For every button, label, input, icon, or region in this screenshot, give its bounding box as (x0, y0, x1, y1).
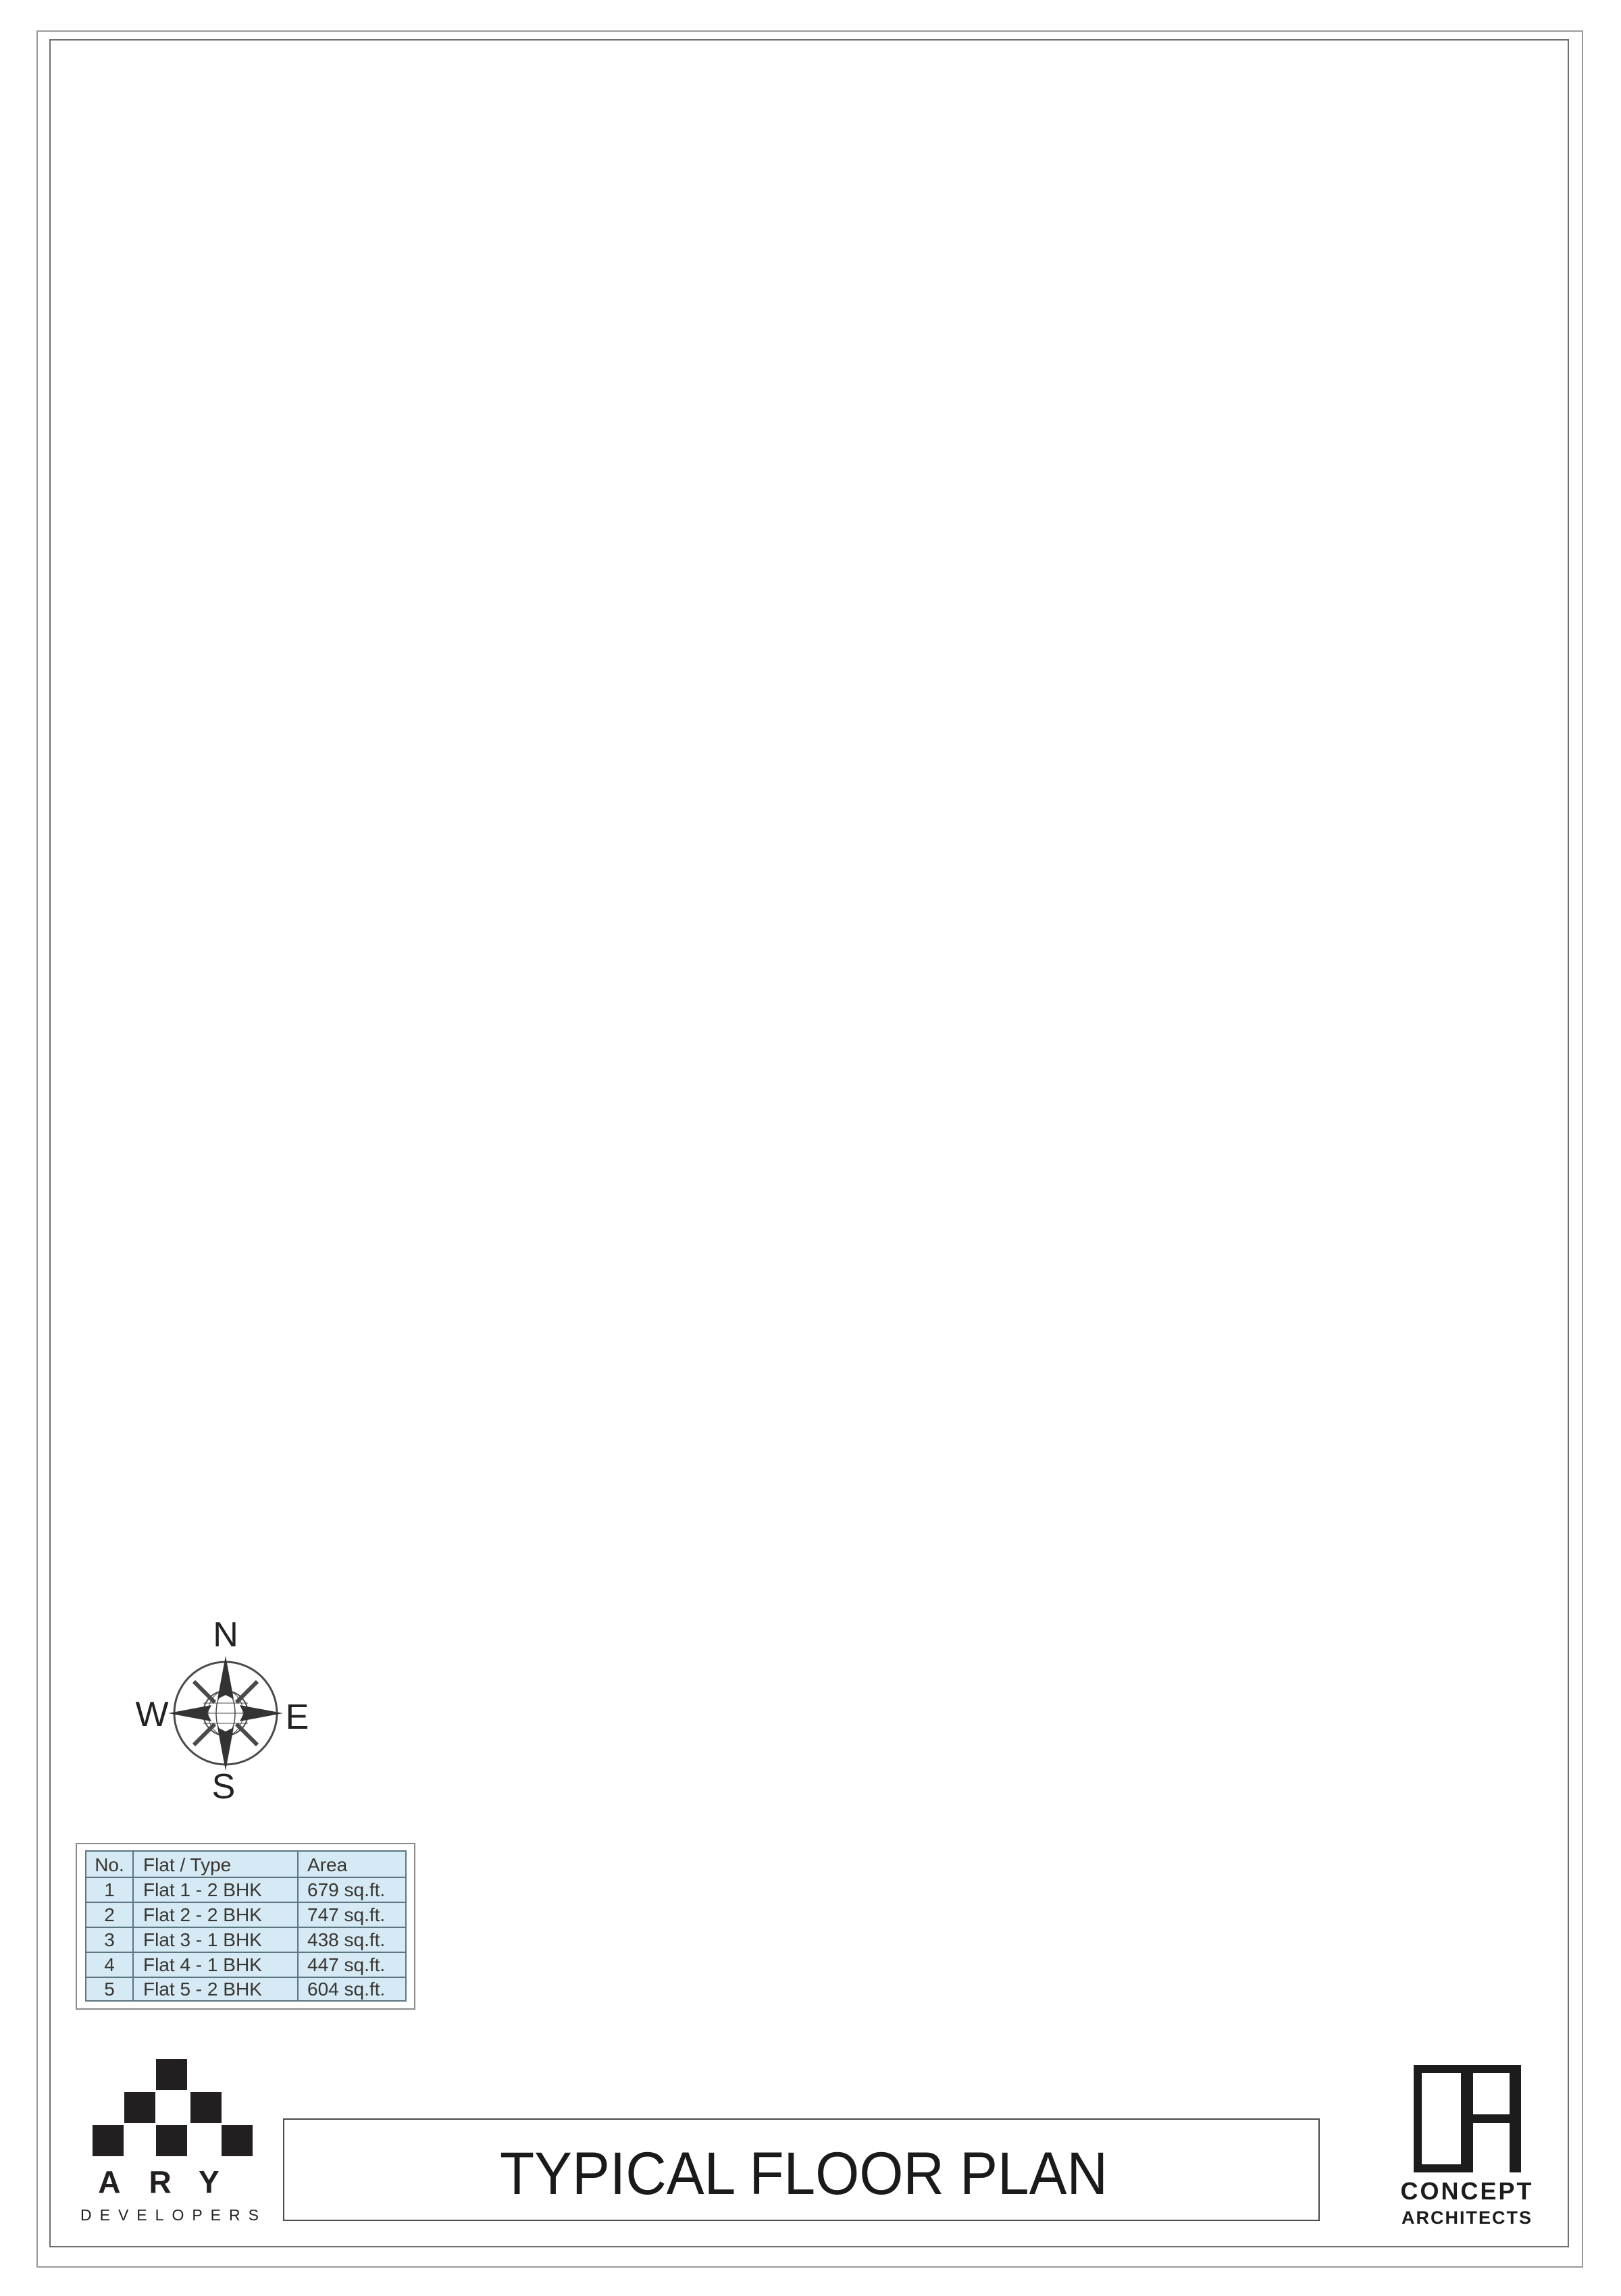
svg-text:TYPICAL FLOOR PLAN: TYPICAL FLOOR PLAN (500, 2139, 1108, 2207)
svg-text:438 sq.ft.: 438 sq.ft. (307, 1929, 385, 1950)
svg-text:DEVELOPERS: DEVELOPERS (80, 2206, 267, 2224)
svg-text:Flat 4 - 1 BHK: Flat 4 - 1 BHK (143, 1954, 262, 1975)
svg-text:W: W (135, 1695, 168, 1734)
svg-text:Flat 2 - 2 BHK: Flat 2 - 2 BHK (143, 1904, 262, 1925)
svg-text:CONCEPT: CONCEPT (1400, 2177, 1533, 2205)
svg-text:2: 2 (104, 1904, 115, 1925)
svg-text:604 sq.ft.: 604 sq.ft. (307, 1979, 385, 2000)
svg-text:Flat 1 - 2 BHK: Flat 1 - 2 BHK (143, 1879, 262, 1900)
svg-text:No.: No. (95, 1854, 124, 1875)
svg-text:ARCHITECTS: ARCHITECTS (1401, 2208, 1533, 2228)
svg-text:747 sq.ft.: 747 sq.ft. (307, 1904, 385, 1925)
svg-text:447 sq.ft.: 447 sq.ft. (307, 1954, 385, 1975)
svg-text:1: 1 (104, 1879, 115, 1900)
svg-text:5: 5 (104, 1979, 115, 2000)
svg-text:Flat / Type: Flat / Type (143, 1854, 231, 1875)
svg-text:4: 4 (104, 1954, 115, 1975)
svg-text:S: S (212, 1767, 236, 1806)
svg-text:679 sq.ft.: 679 sq.ft. (307, 1879, 385, 1900)
svg-text:Flat 5 - 2 BHK: Flat 5 - 2 BHK (143, 1979, 262, 2000)
svg-text:E: E (286, 1698, 309, 1737)
svg-text:N: N (213, 1615, 238, 1654)
svg-text:3: 3 (104, 1929, 115, 1950)
svg-text:ARY: ARY (98, 2164, 247, 2199)
svg-text:Area: Area (307, 1854, 348, 1875)
svg-text:Flat 3 - 1 BHK: Flat 3 - 1 BHK (143, 1929, 262, 1950)
